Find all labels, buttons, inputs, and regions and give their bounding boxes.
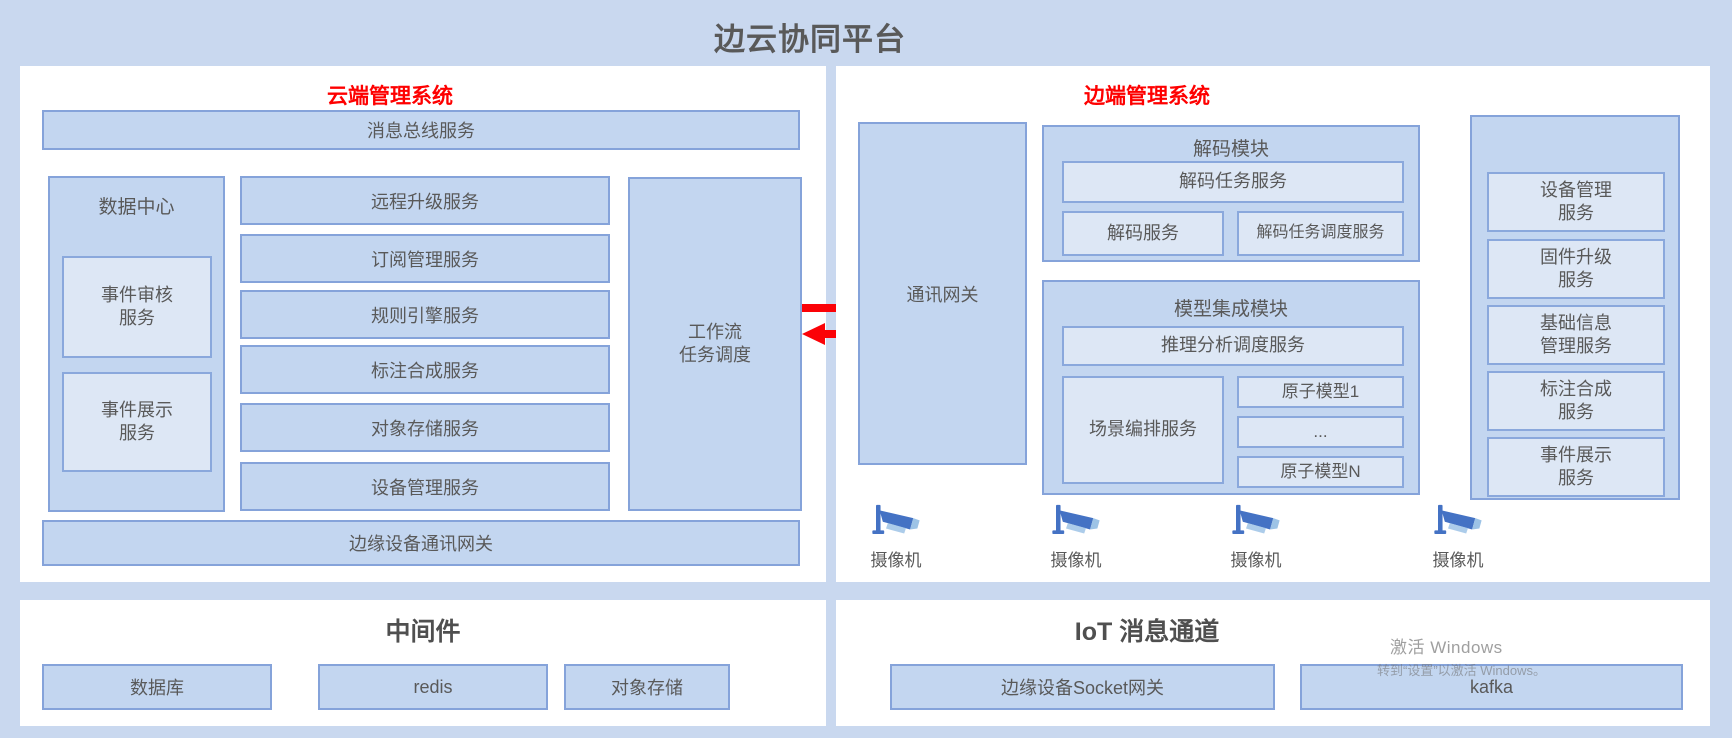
edge-panel: 边端管理系统 通讯网关 解码模块 解码任务服务 解码服务 解码任务调度服务 模型… <box>836 66 1710 582</box>
model-module-container: 模型集成模块 推理分析调度服务 场景编排服务 原子模型1 ... 原子模型N <box>1042 280 1420 495</box>
database-box: 数据库 <box>42 664 272 710</box>
rule-engine-service-box: 规则引擎服务 <box>240 290 610 339</box>
object-storage-box: 对象存储 <box>564 664 730 710</box>
workflow-scheduler-box: 工作流 任务调度 <box>628 177 802 511</box>
middleware-panel: 中间件 数据库 redis 对象存储 <box>20 600 826 726</box>
camera-group-1: 摄像机 <box>836 504 956 571</box>
cloud-panel: 云端管理系统 消息总线服务 数据中心 事件审核 服务 事件展示 服务 远程升级服… <box>20 66 826 582</box>
camera-group-4: 摄像机 <box>1398 504 1518 571</box>
subscription-mgmt-service-box: 订阅管理服务 <box>240 234 610 283</box>
data-center-label: 数据中心 <box>50 178 223 219</box>
edge-device-gateway-box: 边缘设备通讯网关 <box>42 520 800 566</box>
camera-icon <box>1232 504 1280 544</box>
camera-icon <box>1052 504 1100 544</box>
camera-icon <box>872 504 920 544</box>
camera-label: 摄像机 <box>1231 546 1282 571</box>
event-audit-service-box: 事件审核 服务 <box>62 256 212 358</box>
event-display-box: 事件展示 服务 <box>1487 437 1665 497</box>
atomic-model-1-box: 原子模型1 <box>1237 376 1404 408</box>
cloud-panel-header: 云端管理系统 <box>20 80 760 110</box>
message-bus-service-box: 消息总线服务 <box>42 110 800 150</box>
atomic-model-n-box: 原子模型N <box>1237 456 1404 488</box>
camera-label: 摄像机 <box>871 546 922 571</box>
windows-activation-watermark-line2: 转到“设置”以激活 Windows。 <box>1377 660 1546 679</box>
decode-task-service-box: 解码任务服务 <box>1062 161 1404 203</box>
scene-orchestration-box: 场景编排服务 <box>1062 376 1224 484</box>
object-storage-service-box: 对象存储服务 <box>240 403 610 452</box>
page-title: 边云协同平台 <box>0 14 1620 59</box>
camera-group-3: 摄像机 <box>1196 504 1316 571</box>
redis-box: redis <box>318 664 548 710</box>
camera-group-2: 摄像机 <box>1016 504 1136 571</box>
annotation-compose-box: 标注合成 服务 <box>1487 371 1665 431</box>
iot-panel: IoT 消息通道 边缘设备Socket网关 kafka <box>836 600 1710 726</box>
event-display-service-box: 事件展示 服务 <box>62 372 212 472</box>
camera-label: 摄像机 <box>1051 546 1102 571</box>
model-module-label: 模型集成模块 <box>1044 282 1418 321</box>
windows-activation-watermark-line1: 激活 Windows <box>1390 633 1503 658</box>
decode-task-scheduler-box: 解码任务调度服务 <box>1237 211 1404 256</box>
middleware-title: 中间件 <box>20 612 826 648</box>
socket-gateway-box: 边缘设备Socket网关 <box>890 664 1275 710</box>
data-center-container: 数据中心 事件审核 服务 事件展示 服务 <box>48 176 225 512</box>
device-mgmt-service-box: 设备管理服务 <box>240 462 610 511</box>
atomic-model-ellipsis-box: ... <box>1237 416 1404 448</box>
device-services-container: 设备管理 服务 固件升级 服务 基础信息 管理服务 标注合成 服务 事件展示 服… <box>1470 115 1680 500</box>
basic-info-mgmt-box: 基础信息 管理服务 <box>1487 305 1665 365</box>
edge-cloud-platform-diagram: 边云协同平台 云端管理系统 消息总线服务 数据中心 事件审核 服务 事件展示 服… <box>0 0 1732 738</box>
edge-panel-header: 边端管理系统 <box>836 80 1458 110</box>
decode-module-label: 解码模块 <box>1044 127 1418 161</box>
inference-scheduler-box: 推理分析调度服务 <box>1062 326 1404 366</box>
iot-title: IoT 消息通道 <box>836 612 1458 648</box>
remote-upgrade-service-box: 远程升级服务 <box>240 176 610 225</box>
decode-service-box: 解码服务 <box>1062 211 1224 256</box>
camera-label: 摄像机 <box>1433 546 1484 571</box>
comm-gateway-box: 通讯网关 <box>858 122 1027 465</box>
decode-module-container: 解码模块 解码任务服务 解码服务 解码任务调度服务 <box>1042 125 1420 262</box>
device-mgmt-box: 设备管理 服务 <box>1487 172 1665 232</box>
annotation-compose-service-box: 标注合成服务 <box>240 345 610 394</box>
firmware-upgrade-box: 固件升级 服务 <box>1487 239 1665 299</box>
camera-icon <box>1434 504 1482 544</box>
